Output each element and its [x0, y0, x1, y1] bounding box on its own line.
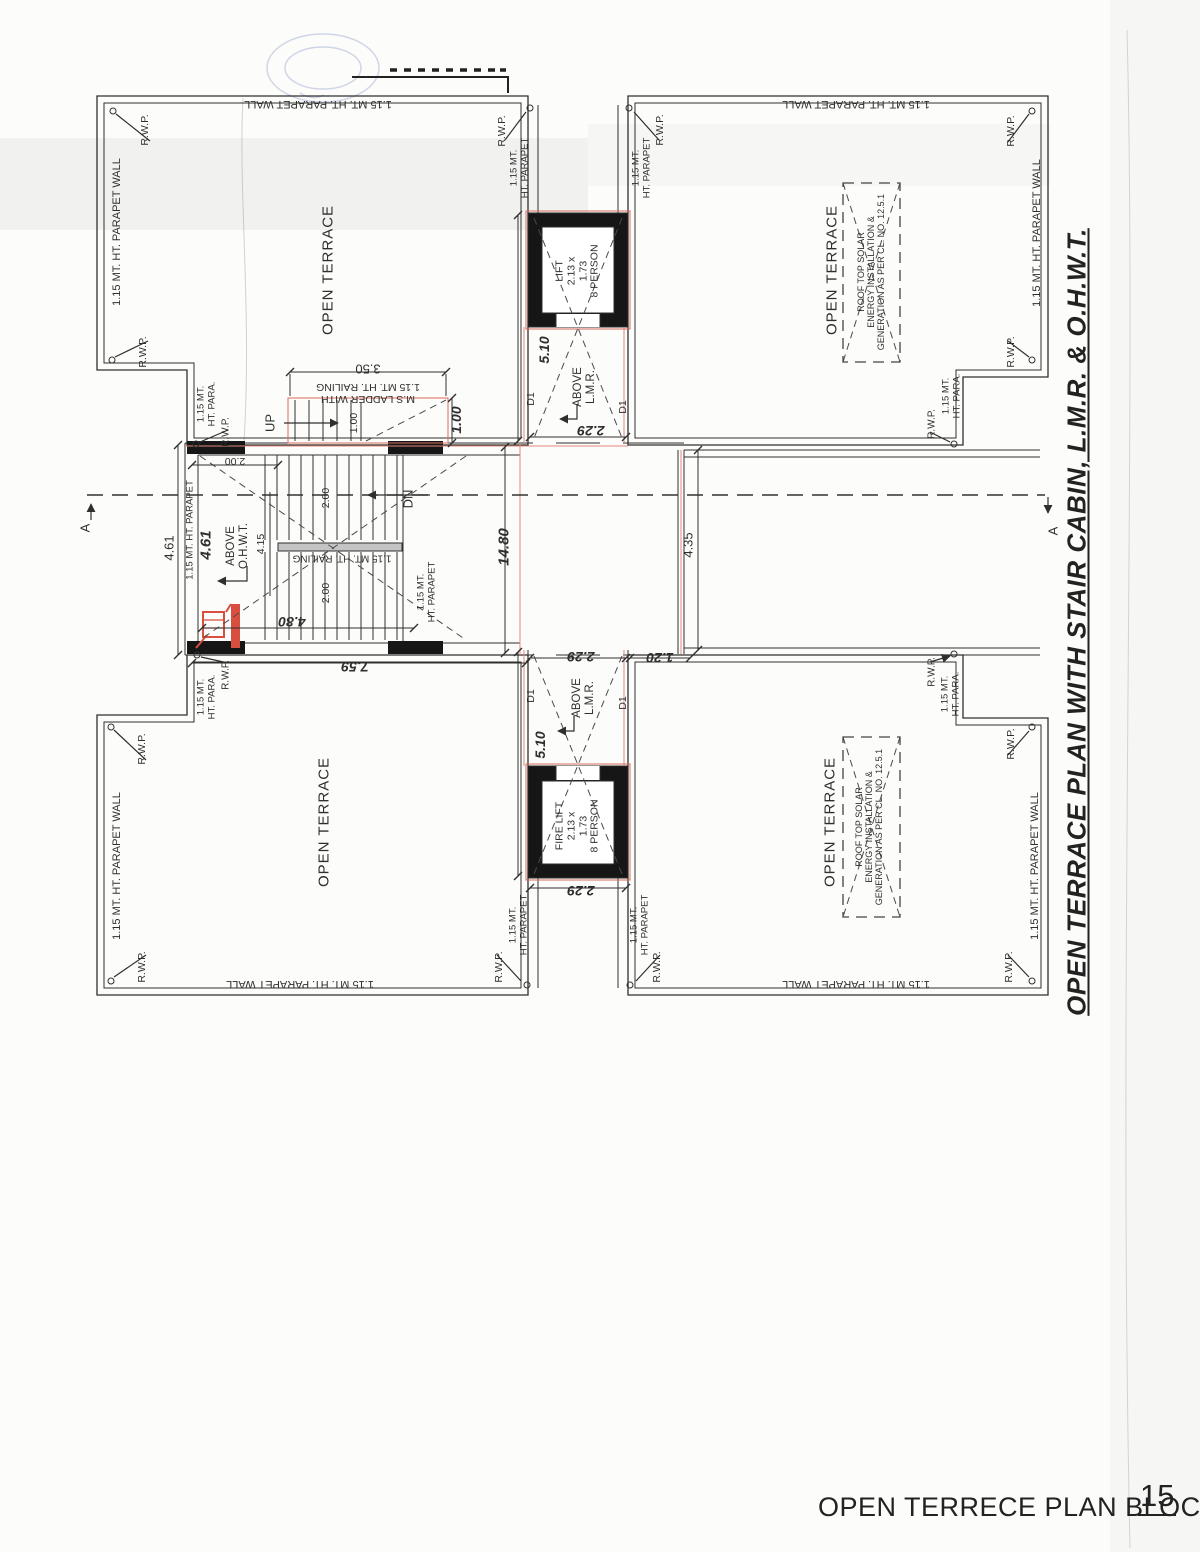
dim-1-00: 1.00	[349, 413, 361, 433]
above-ohwt-note: ABOVE O.H.W.T.	[225, 523, 251, 569]
parapet-label: 1.15 MT. HT. PARAPET	[416, 562, 437, 623]
lmr-arrow	[558, 716, 574, 731]
parapet-notch-label: 1.15 MT. HT. PARA.	[940, 672, 961, 717]
solar-note: ROOF TOP SOLAR ENERGY INSTALLATION & GEN…	[854, 749, 884, 905]
dim-1-00: 1.00	[449, 406, 465, 433]
page-number: 15	[1138, 1478, 1176, 1516]
scanned-drawing-page: 1.15 MT. HT. PARAPET WALL1.15 MT. HT. PA…	[0, 0, 1200, 1552]
lift-core	[528, 96, 628, 988]
parapet-notch-label: 1.15 MT. HT. PARA.	[196, 382, 217, 427]
dim-4-80: 4.80	[278, 613, 305, 629]
rwp-label: R.W.P.	[1006, 728, 1018, 759]
parapet-label: 1.15 MT. HT. PARAPET	[186, 480, 197, 580]
lift-label: LIFT 2.13 x 1.73 8 PERSON	[555, 244, 602, 297]
parapet-wall-label: 1.15 MT. HT. PARAPET WALL	[782, 98, 930, 110]
rwp-label: R.W.P.	[1004, 951, 1016, 982]
rwp-label: R.W.P.	[1006, 336, 1018, 367]
parapet-wall-label: 1.15 MT. HT. PARAPET WALL	[1031, 159, 1043, 307]
parapet-wall-label: 1.15 MT. HT. PARAPET WALL	[782, 978, 930, 990]
rwp-label: R.W.P.	[1006, 115, 1018, 146]
dn-label: DN	[402, 490, 417, 509]
parapet-label: 1.15 MT. HT. PARAPET	[629, 895, 650, 956]
dim-2-29: 2.29	[567, 648, 594, 664]
fire-lift-label: FIRE LIFT 2.13 x 1.73 8 PERSON	[555, 799, 602, 852]
door-d1-label: D1	[618, 400, 630, 413]
above-lmr-note: ABOVE L.M.R.	[572, 367, 598, 407]
dim-2-00: 2.00	[225, 454, 245, 466]
dim-2-29: 2.29	[577, 422, 604, 438]
rwp-label: R.W.P.	[138, 336, 150, 367]
rwp-label: R.W.P.	[497, 115, 509, 146]
stamp-icon	[267, 34, 379, 102]
dim-4-35: 4.35	[682, 532, 697, 557]
ladder-note: M.S LADDER WITH 1.15 MT. HT. RAILING	[316, 380, 420, 404]
open-terrace-label: OPEN TERRACE	[823, 757, 840, 887]
section-marker-a: A	[79, 524, 94, 533]
parapet-notch-label: 1.15 MT. HT. PARA.	[941, 374, 962, 419]
parapet-wall-label: 1.15 MT. HT. PARAPET WALL	[111, 158, 123, 306]
above-lmr-note: ABOVE L.M.R.	[571, 678, 597, 718]
parapet-wall-label: 1.15 MT. HT. PARAPET WALL	[111, 792, 123, 940]
dim-2-00: 2.00	[321, 488, 333, 508]
dim-14-80: 14.80	[497, 528, 514, 566]
mid-landing-railing	[278, 543, 402, 551]
solar-note: ROOF TOP SOLAR ENERGY INSTALLATION & GEN…	[856, 194, 886, 350]
rwp-label: R.W.P.	[652, 951, 664, 982]
railing-note: 1.15 MT. HT. RAILING	[293, 552, 392, 563]
open-terrace-label: OPEN TERRACE	[317, 757, 334, 887]
rwp-label: R.W.P.	[926, 657, 937, 687]
parapet-wall-label: 1.15 MT. HT. PARAPET WALL	[1029, 792, 1041, 940]
open-terrace-label: OPEN TERRACE	[825, 205, 842, 335]
section-marker-a: A	[1047, 527, 1062, 536]
open-terrace-label: OPEN TERRACE	[321, 205, 338, 335]
parapet-wall-label: 1.15 MT. HT. PARAPET WALL	[244, 98, 392, 110]
parapet-label: 1.15 MT. HT. PARAPET	[509, 138, 530, 199]
dim-2-00: 2.00	[321, 583, 333, 603]
rwp-label: R.W.P.	[655, 114, 667, 145]
door-d1-label: D1	[526, 689, 538, 702]
parapet-label: 1.15 MT. HT. PARAPET	[508, 895, 529, 956]
rwp-label: R.W.P.	[926, 409, 937, 439]
ladder-treads	[295, 400, 351, 441]
rwp-label: R.W.P.	[137, 733, 149, 764]
dim-7-59: 7.59	[341, 658, 368, 674]
rwp-label: R.W.P.	[220, 660, 231, 690]
parapet-wall-label: 1.15 MT. HT. PARAPET WALL	[226, 978, 374, 990]
dim-1-20: 1.20	[646, 649, 673, 665]
rwp-label: R.W.P.	[494, 951, 506, 982]
drawing-title: OPEN TERRACE PLAN WITH STAIR CABIN, L.M.…	[1062, 228, 1093, 1016]
rwp-label: R.W.P.	[220, 417, 231, 447]
dim-4-61: 4.61	[163, 535, 178, 560]
door-d1-label: D1	[618, 696, 630, 709]
dim-5-10: 5.10	[537, 336, 553, 363]
dim-4-15: 4.15	[256, 534, 268, 554]
rwp-label: R.W.P.	[137, 951, 149, 982]
dim-4-61: 4.61	[199, 530, 216, 559]
up-label: UP	[264, 414, 279, 432]
central-gap-walls	[678, 450, 1040, 655]
rwp-label: R.W.P.	[140, 114, 152, 145]
dim-3-50: 3.50	[355, 361, 380, 376]
floor-plan-linework	[0, 0, 1200, 1552]
dim-2-29: 2.29	[567, 882, 594, 898]
parapet-label: 1.15 MT. HT. PARAPET	[631, 138, 652, 199]
dim-5-10: 5.10	[533, 731, 549, 758]
door-d1-label: D1	[526, 392, 538, 405]
parapet-notch-label: 1.15 MT. HT. PARA.	[196, 675, 217, 720]
